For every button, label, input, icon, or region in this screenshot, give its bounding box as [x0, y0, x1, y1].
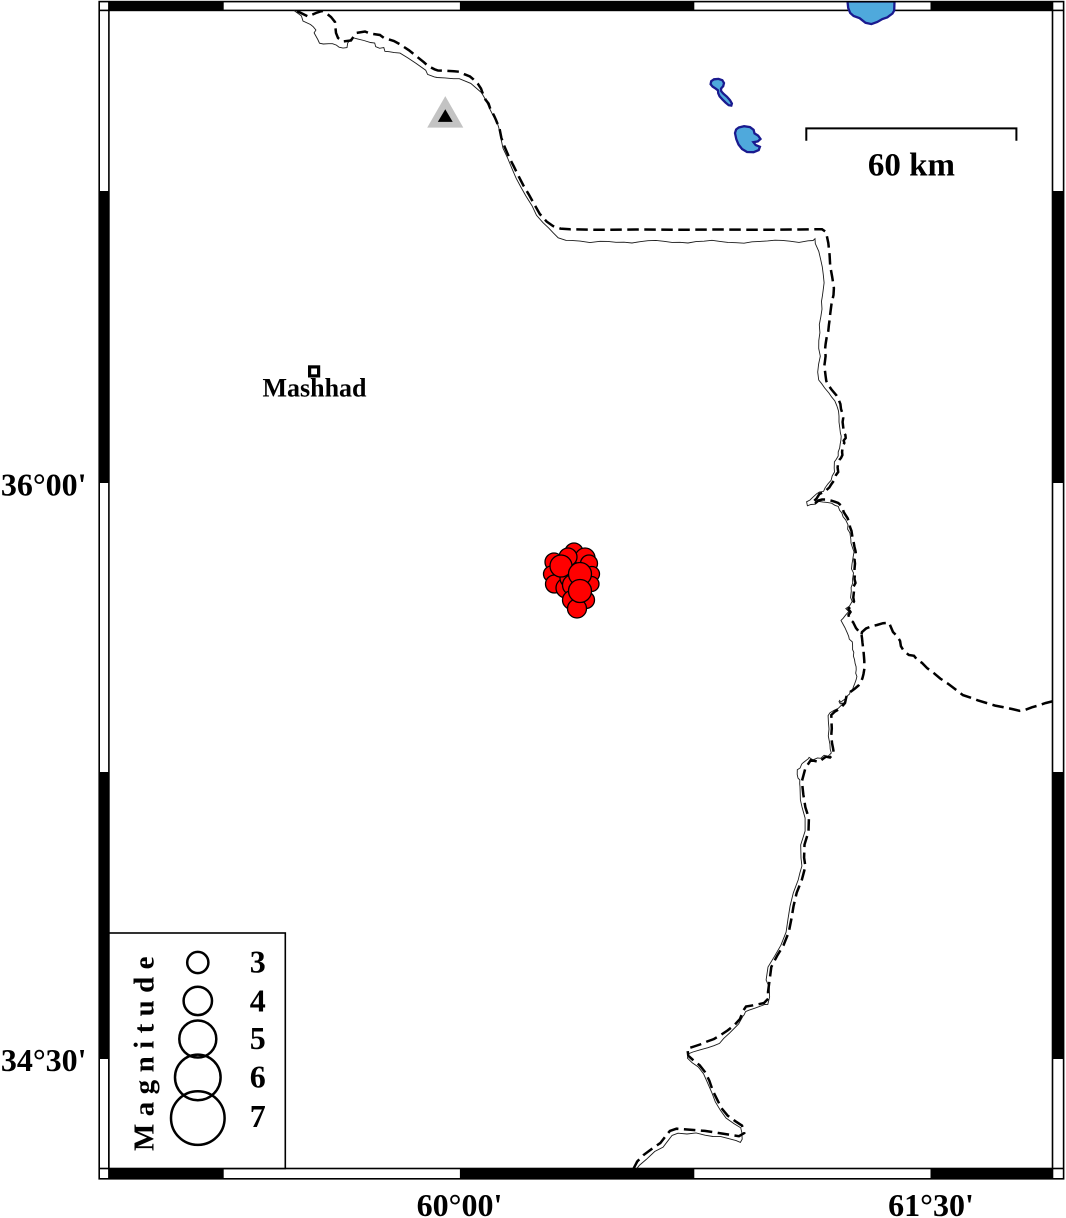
svg-text:7: 7: [250, 1098, 266, 1134]
svg-text:60°00': 60°00': [417, 1187, 503, 1218]
svg-text:4: 4: [250, 983, 266, 1019]
svg-text:5: 5: [250, 1020, 266, 1056]
svg-text:61°30': 61°30': [888, 1187, 974, 1218]
svg-text:6: 6: [250, 1059, 266, 1095]
svg-text:Magnitude: Magnitude: [129, 949, 161, 1151]
svg-text:34°30': 34°30': [1, 1042, 87, 1078]
svg-text:Mashhad: Mashhad: [262, 373, 367, 402]
svg-text:36°00': 36°00': [1, 467, 87, 503]
svg-text:60 km: 60 km: [868, 148, 955, 184]
svg-text:3: 3: [250, 943, 266, 979]
